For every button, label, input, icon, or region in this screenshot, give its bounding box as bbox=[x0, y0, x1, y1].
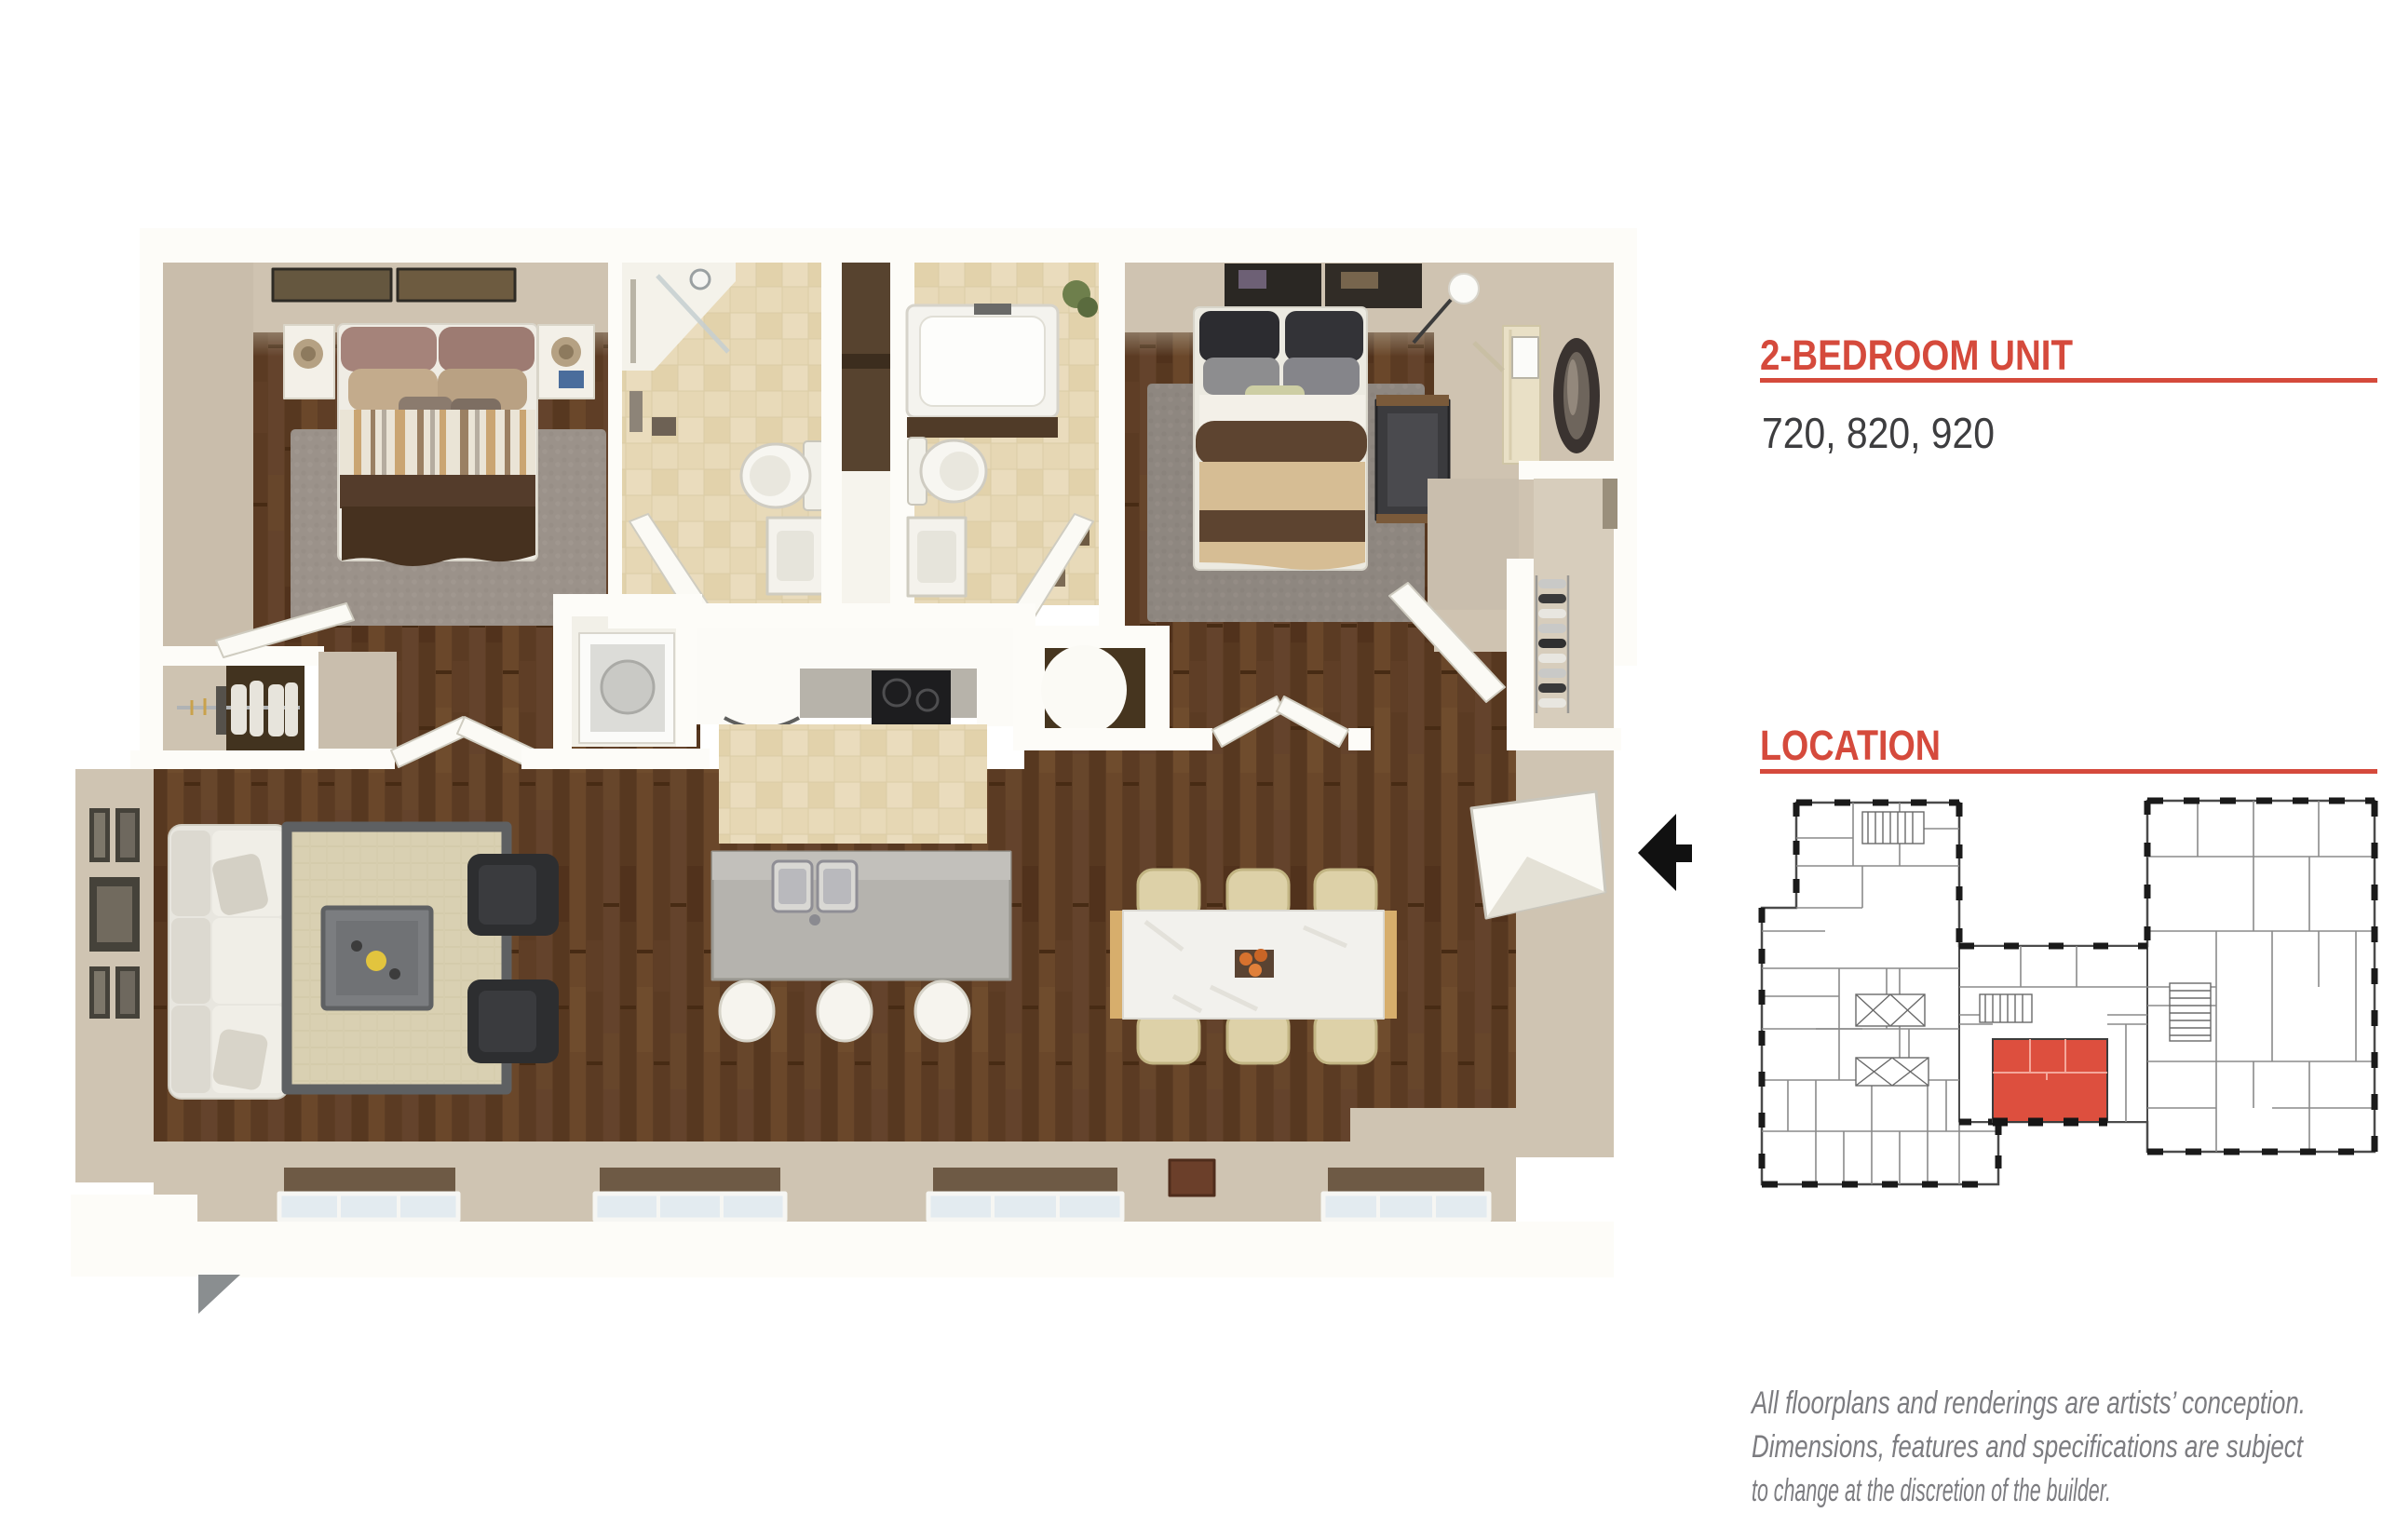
svg-text:2-BEDROOM UNIT: 2-BEDROOM UNIT bbox=[1760, 331, 2073, 379]
svg-text:720, 820, 920: 720, 820, 920 bbox=[1762, 409, 1995, 457]
svg-text:LOCATION: LOCATION bbox=[1760, 722, 1941, 769]
svg-text:All floorplans and renderings: All floorplans and renderings are artist… bbox=[1750, 1385, 2306, 1421]
svg-text:to change at the discretion of: to change at the discretion of the build… bbox=[1752, 1473, 2111, 1508]
svg-text:Dimensions, features and speci: Dimensions, features and specifications … bbox=[1752, 1429, 2304, 1465]
